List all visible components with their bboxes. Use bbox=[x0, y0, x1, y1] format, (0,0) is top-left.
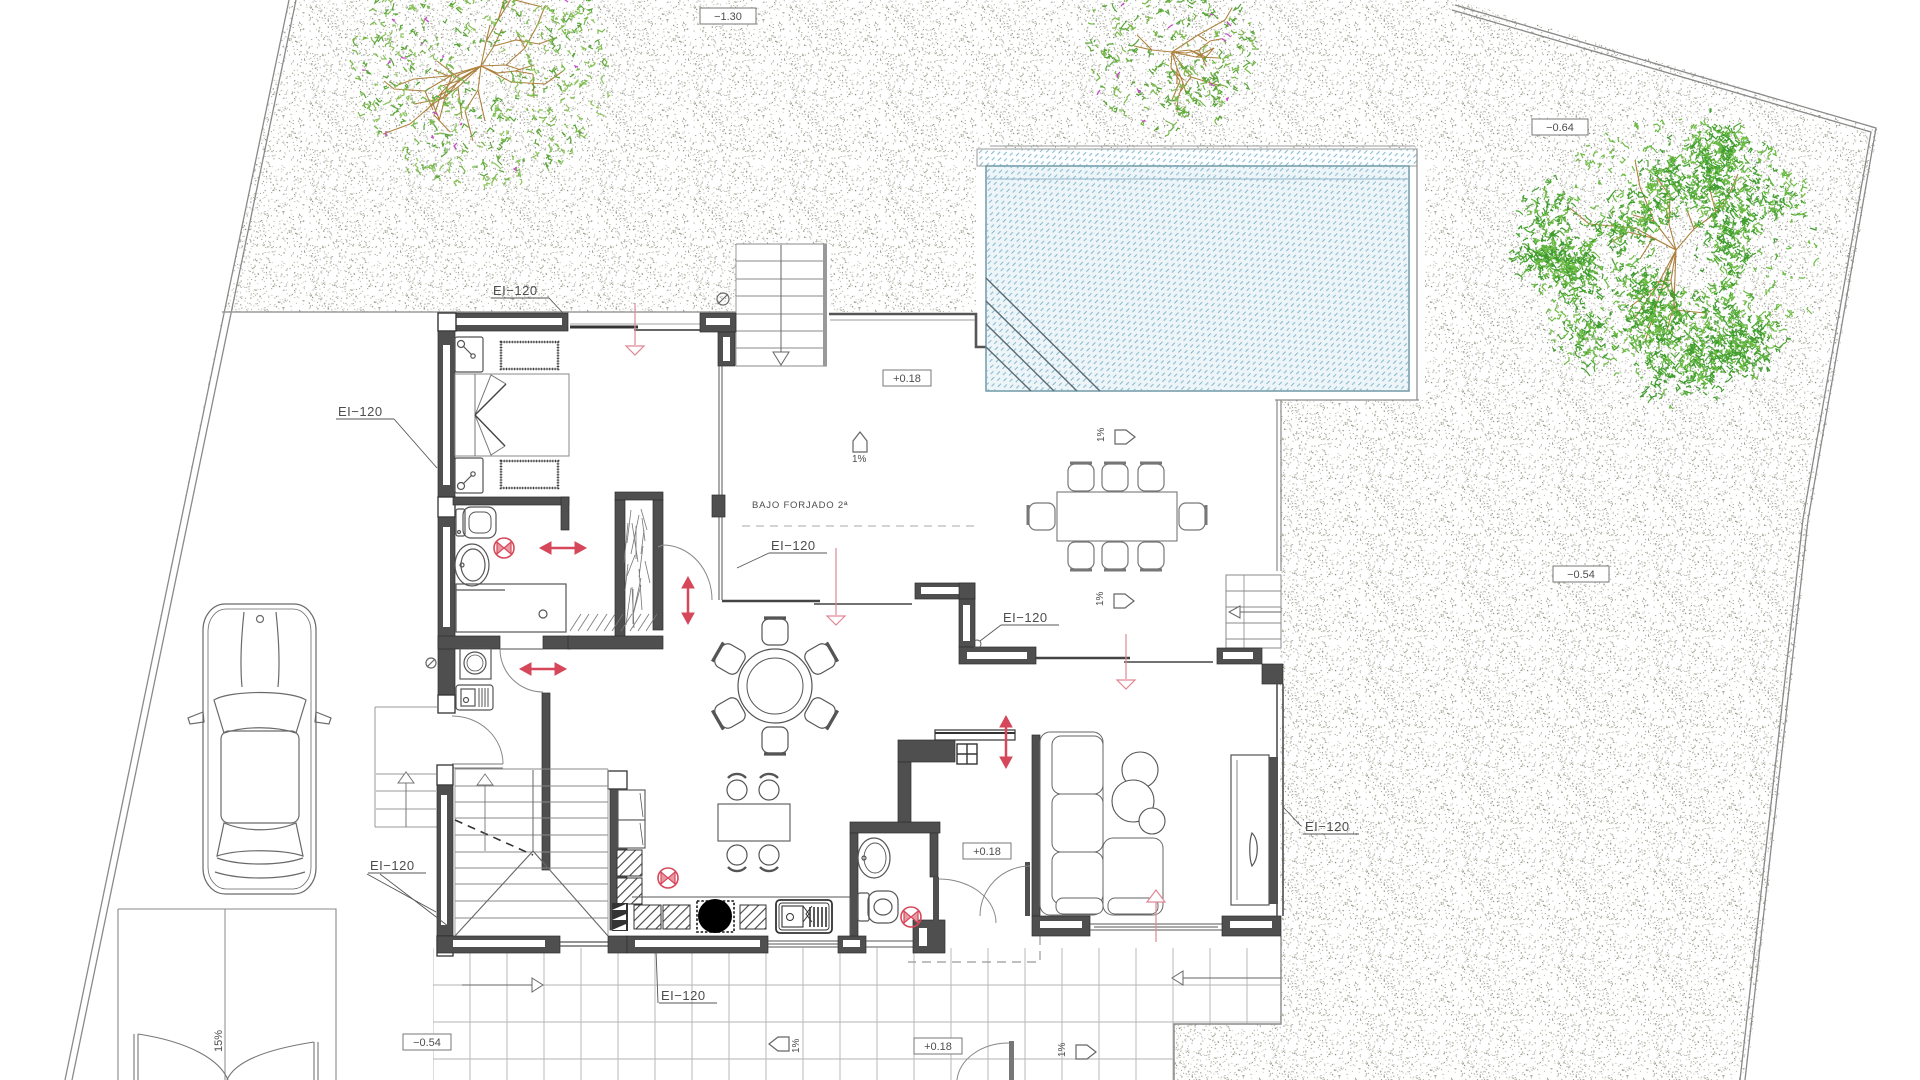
svg-text:EI−120: EI−120 bbox=[771, 538, 816, 553]
svg-text:EI−120: EI−120 bbox=[370, 858, 415, 873]
svg-text:1%: 1% bbox=[852, 454, 867, 465]
svg-text:1%: 1% bbox=[1096, 427, 1107, 442]
svg-text:1%: 1% bbox=[1057, 1042, 1068, 1057]
svg-text:EI−120: EI−120 bbox=[1003, 610, 1048, 625]
svg-text:EI−120: EI−120 bbox=[1305, 819, 1350, 834]
svg-text:−0.64: −0.64 bbox=[1546, 122, 1574, 134]
svg-text:EI−120: EI−120 bbox=[661, 988, 706, 1003]
svg-text:EI−120: EI−120 bbox=[493, 283, 538, 298]
svg-text:−0.54: −0.54 bbox=[1567, 569, 1595, 581]
svg-text:+0.18: +0.18 bbox=[893, 373, 921, 385]
svg-text:−1.30: −1.30 bbox=[714, 11, 742, 23]
svg-text:1%: 1% bbox=[791, 1038, 802, 1053]
svg-text:BAJO FORJADO 2ª: BAJO FORJADO 2ª bbox=[752, 500, 848, 511]
svg-text:+0.18: +0.18 bbox=[973, 846, 1001, 858]
svg-text:1%: 1% bbox=[1095, 591, 1106, 606]
svg-text:15%: 15% bbox=[213, 1030, 225, 1052]
svg-text:−0.54: −0.54 bbox=[413, 1037, 441, 1049]
svg-text:EI−120: EI−120 bbox=[338, 404, 383, 419]
svg-text:+0.18: +0.18 bbox=[924, 1041, 952, 1053]
